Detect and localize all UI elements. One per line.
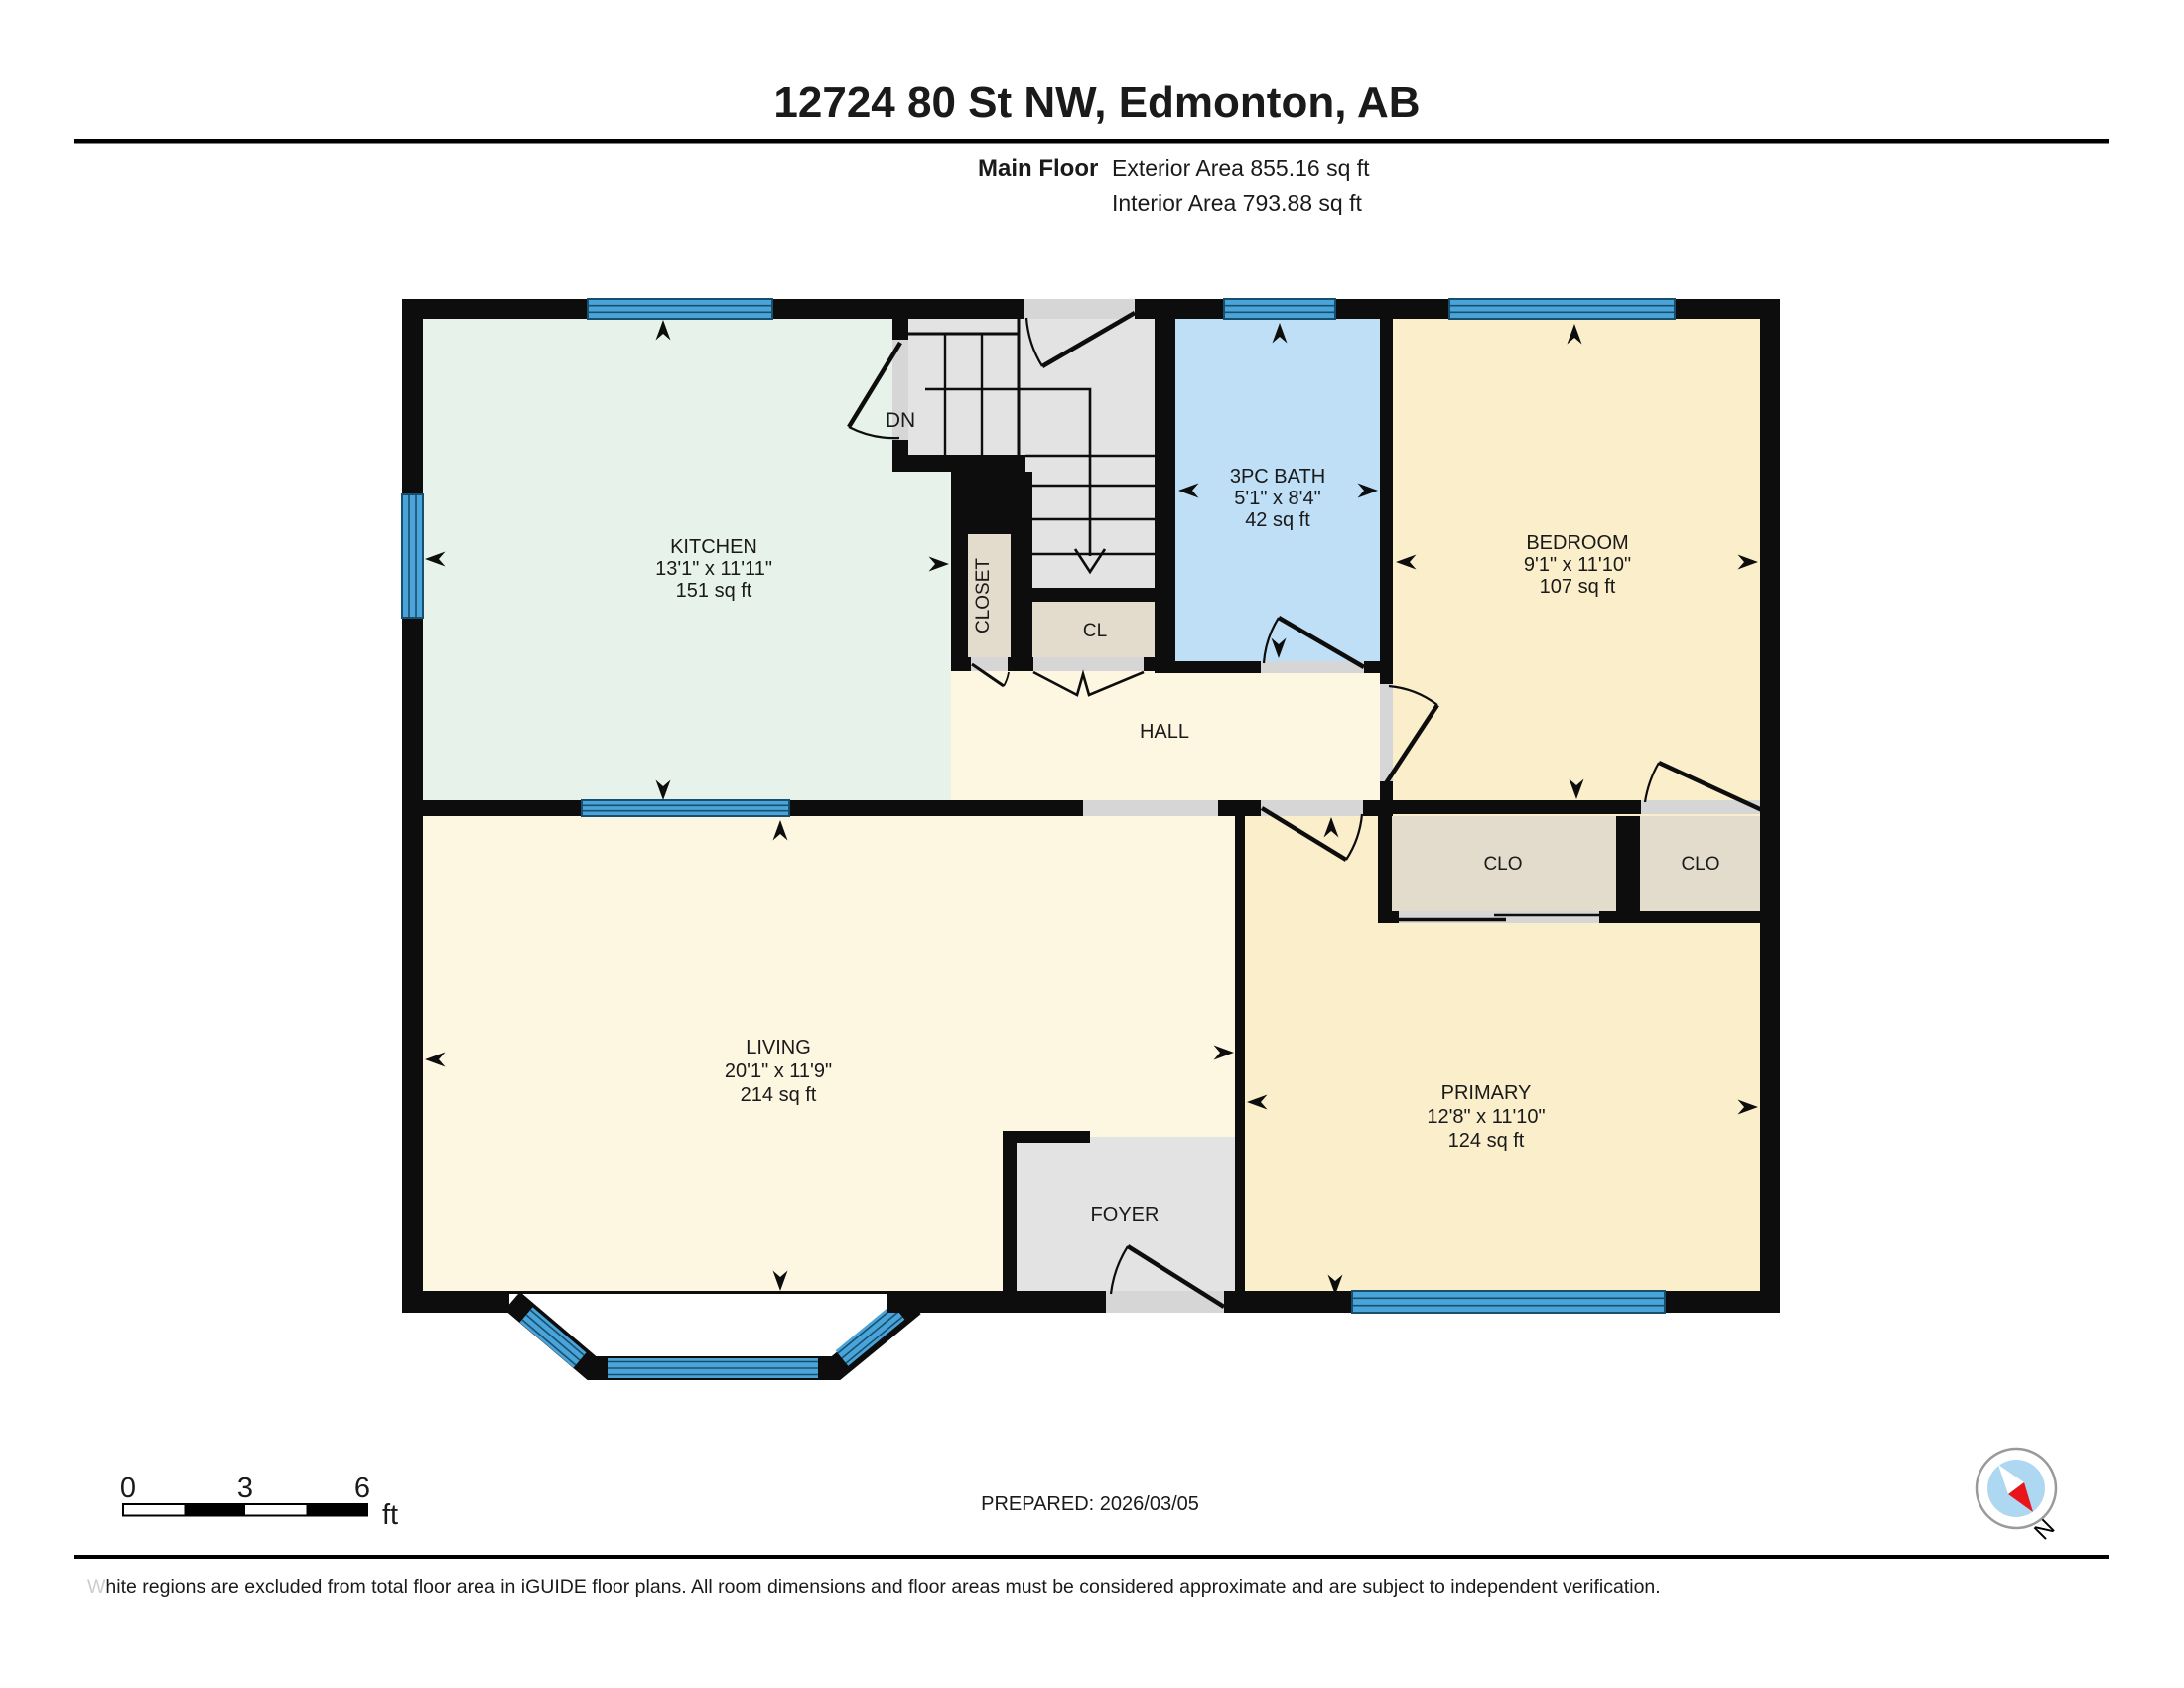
svg-text:PREPARED: 2026/03/05: PREPARED: 2026/03/05 <box>981 1493 1199 1515</box>
svg-text:12'8" x 11'10": 12'8" x 11'10" <box>1427 1106 1545 1128</box>
svg-text:42 sq ft: 42 sq ft <box>1245 509 1310 531</box>
svg-text:13'1" x 11'11": 13'1" x 11'11" <box>655 558 772 580</box>
svg-text:6: 6 <box>354 1473 370 1504</box>
svg-text:3PC BATH: 3PC BATH <box>1230 466 1325 488</box>
svg-text:12724 80 St NW, Edmonton, AB: 12724 80 St NW, Edmonton, AB <box>773 78 1420 127</box>
svg-text:Exterior Area 855.16 sq ft: Exterior Area 855.16 sq ft <box>1112 155 1370 181</box>
svg-text:LIVING: LIVING <box>746 1037 811 1058</box>
svg-text:3: 3 <box>237 1473 253 1504</box>
svg-text:151 sq ft: 151 sq ft <box>676 580 752 602</box>
svg-text:CL: CL <box>1083 621 1107 641</box>
svg-text:20'1" x 11'9": 20'1" x 11'9" <box>725 1060 832 1082</box>
svg-text:White regions are excluded fro: White regions are excluded from total fl… <box>87 1576 1661 1598</box>
svg-text:KITCHEN: KITCHEN <box>670 536 757 558</box>
svg-text:BEDROOM: BEDROOM <box>1526 532 1628 554</box>
svg-text:214 sq ft: 214 sq ft <box>741 1084 817 1106</box>
svg-text:0: 0 <box>120 1473 136 1504</box>
svg-text:FOYER: FOYER <box>1091 1204 1160 1226</box>
svg-text:5'1" x 8'4": 5'1" x 8'4" <box>1234 488 1320 509</box>
svg-text:124 sq ft: 124 sq ft <box>1448 1130 1525 1152</box>
svg-text:CLO: CLO <box>1483 854 1522 875</box>
svg-text:CLOSET: CLOSET <box>973 558 994 633</box>
svg-text:107 sq ft: 107 sq ft <box>1540 576 1616 598</box>
svg-text:PRIMARY: PRIMARY <box>1441 1082 1532 1104</box>
svg-text:HALL: HALL <box>1140 721 1189 743</box>
svg-text:9'1" x 11'10": 9'1" x 11'10" <box>1524 554 1631 576</box>
svg-text:Main Floor: Main Floor <box>978 155 1098 182</box>
svg-text:Interior Area 793.88 sq ft: Interior Area 793.88 sq ft <box>1112 190 1362 215</box>
svg-text:DN: DN <box>886 409 915 432</box>
svg-text:ft: ft <box>382 1499 398 1531</box>
svg-text:CLO: CLO <box>1681 854 1719 875</box>
